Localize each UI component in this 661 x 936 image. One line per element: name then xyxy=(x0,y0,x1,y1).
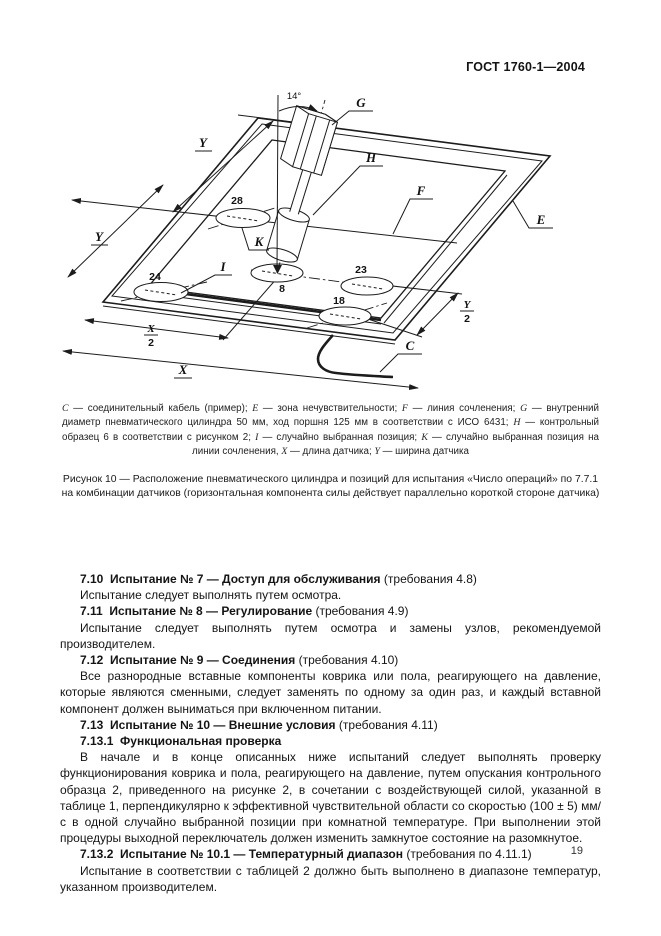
legend-term: G xyxy=(520,403,527,414)
legend-term: Y xyxy=(374,446,379,457)
paragraph: Все разнородные вставные компоненты ковр… xyxy=(60,668,601,717)
body-text: 7.10 Испытание № 7 — Доступ для обслужив… xyxy=(60,571,601,895)
label-I: I xyxy=(219,259,226,274)
position-23-label: 23 xyxy=(355,264,367,276)
callout-K: K xyxy=(242,228,269,250)
callout-F: F xyxy=(393,183,433,234)
label-C: C xyxy=(406,338,415,353)
section-heading: 7.10 Испытание № 7 — Доступ для обслужив… xyxy=(60,571,601,587)
label-E: E xyxy=(536,212,546,227)
legend-term: H xyxy=(513,417,520,428)
paragraph: Испытание в соответствии с таблицей 2 до… xyxy=(60,863,601,895)
position-24-label: 24 xyxy=(149,271,161,283)
page-number: 19 xyxy=(571,845,583,857)
position-28-label: 28 xyxy=(231,195,243,207)
document-page: ГОСТ 1760-1—2004 xyxy=(0,0,661,936)
callout-E: E xyxy=(513,201,553,228)
legend-term: I xyxy=(255,432,258,443)
dim-label-x-half-num: X xyxy=(146,323,155,335)
position-8-label: 8 xyxy=(279,283,285,295)
paragraph: Испытание следует выполнять путем осмотр… xyxy=(60,620,601,652)
sensor-mat xyxy=(148,140,507,324)
position-18: 18 xyxy=(319,295,371,325)
legend-term: K xyxy=(421,432,428,443)
section-heading: 7.13 Испытание № 10 — Внешние условия (т… xyxy=(60,717,601,733)
section-heading: 7.11 Испытание № 8 — Регулирование (треб… xyxy=(60,603,601,619)
legend-term: X xyxy=(281,446,287,457)
dim-x-half: X 2 xyxy=(85,269,285,349)
legend-term: F xyxy=(402,403,408,414)
legend-term: C xyxy=(62,403,69,414)
figure-caption: Рисунок 10 — Расположение пневматическог… xyxy=(60,473,601,501)
dim-label-y-half-den: 2 xyxy=(464,313,470,325)
figure-legend: C — соединительный кабель (пример); E — … xyxy=(62,402,599,459)
dim-y-lower: Y xyxy=(68,185,163,277)
paragraph: В начале и в конце описанных ниже испыта… xyxy=(60,749,601,846)
dim-label-x-half-den: 2 xyxy=(148,337,154,349)
legend-term: E xyxy=(252,403,258,414)
section-heading: 7.12 Испытание № 9 — Соединения (требова… xyxy=(60,652,601,668)
paragraph: Испытание следует выполнять путем осмотр… xyxy=(60,587,601,603)
label-G: G xyxy=(356,95,366,110)
dim-x: X xyxy=(63,351,418,388)
dim-label-y-lower: Y xyxy=(95,229,104,244)
doc-code: ГОСТ 1760-1—2004 xyxy=(466,60,585,74)
section-heading: 7.13.1 Функциональная проверка xyxy=(60,733,601,749)
position-18-label: 18 xyxy=(333,295,345,307)
label-K: K xyxy=(254,234,265,249)
dim-label-x: X xyxy=(178,362,188,377)
callouts: G H F E C K I xyxy=(181,95,553,372)
cylinder-block xyxy=(281,106,338,176)
callout-G: G xyxy=(332,95,373,125)
section-heading: 7.13.2 Испытание № 10.1 — Температурный … xyxy=(60,846,601,862)
position-28: 28 xyxy=(216,195,270,228)
figure-10-diagram: Y Y X 2 X Y 2 xyxy=(55,85,610,397)
dim-label-y-upper: Y xyxy=(199,135,208,150)
angle-label: 14° xyxy=(287,91,302,102)
label-F: F xyxy=(416,183,426,198)
position-23: 23 xyxy=(341,264,393,295)
position-24: 24 xyxy=(134,271,188,302)
pneumatic-cylinder-assembly: 14° xyxy=(265,91,337,274)
label-H: H xyxy=(365,150,377,165)
dim-label-y-half-num: Y xyxy=(464,299,472,311)
piston-rod xyxy=(290,170,312,215)
callout-I: I xyxy=(181,259,232,293)
